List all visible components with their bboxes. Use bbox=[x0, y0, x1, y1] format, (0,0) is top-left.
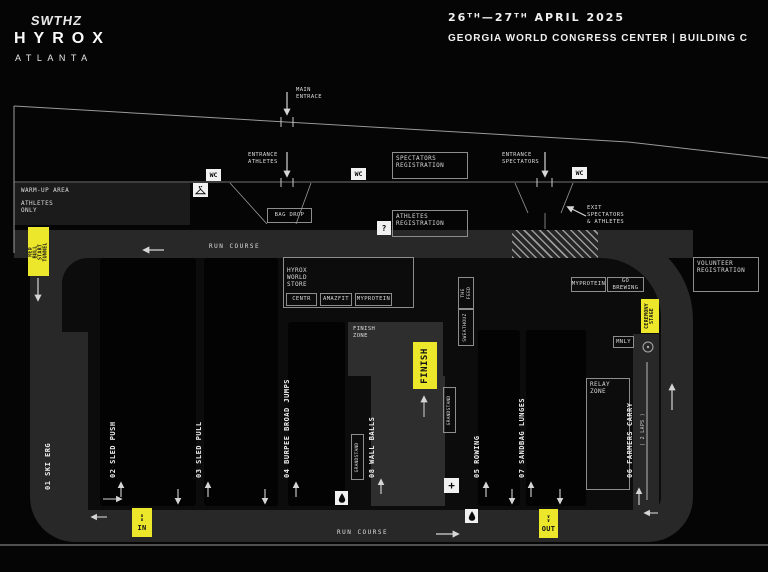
gate-out: ∨ ∨ OUT bbox=[539, 509, 558, 538]
skierg-lane bbox=[62, 332, 88, 510]
grandstand-left-label: GRANDSTAND bbox=[355, 442, 360, 472]
exit-arrow bbox=[568, 207, 586, 216]
station-farmers-note: ( 2 LAPS ) bbox=[640, 413, 646, 446]
bag-drop-box: BAG DROP bbox=[267, 208, 312, 223]
entrance-spectators-label: ENTRANCE SPECTATORS bbox=[502, 152, 539, 166]
wc-box-3: WC bbox=[572, 167, 587, 179]
info-box: ? bbox=[377, 221, 391, 235]
station-skierg-label: 01 SKI ERG bbox=[44, 443, 52, 490]
station-wall-balls-label: 08 WALL BALLS bbox=[368, 417, 376, 478]
wc-box-2: WC bbox=[351, 168, 366, 180]
store-brand-amazfit: AMAZFIT bbox=[320, 293, 352, 306]
sponsor-myprotein-box: MYPROTEIN bbox=[571, 277, 606, 292]
station-sled-push-label: 02 SLED PUSH bbox=[109, 421, 117, 478]
station-farmers-label: 06 FARMERS CARRY bbox=[626, 403, 634, 478]
wall-balls-block bbox=[371, 376, 445, 506]
grandstand-right-box: GRANDSTAND bbox=[443, 387, 456, 433]
chevron-down-icon: ∨ ∨ bbox=[547, 515, 550, 523]
station-sled-pull-label: 03 SLED PULL bbox=[195, 421, 203, 478]
water-station-box-1 bbox=[335, 491, 348, 505]
start-tunnel-label: RED BULL START TUNNEL bbox=[29, 241, 49, 262]
athletes-only-label: ATHLETES ONLY bbox=[21, 200, 53, 214]
timing-clock-icon bbox=[641, 340, 655, 354]
station-rowing-label: 05 ROWING bbox=[473, 436, 481, 478]
station-burpee-label: 04 BURPEE BROAD JUMPS bbox=[283, 379, 291, 478]
store-title: HYROX WORLD STORE bbox=[287, 267, 307, 288]
spectators-registration-box: SPECTATORS REGISTRATION bbox=[392, 152, 468, 179]
event-city: ATLANTA bbox=[15, 53, 93, 63]
medical-box: + bbox=[444, 478, 459, 493]
chevron-up-icon: ∧ ∧ bbox=[140, 514, 143, 522]
sweathouz-label: SWEATHOUZ bbox=[463, 313, 469, 341]
sandbag-block bbox=[526, 330, 586, 506]
relay-zone-box: RELAY ZONE bbox=[586, 378, 630, 490]
red-bull-start-tunnel: RED BULL START TUNNEL bbox=[28, 227, 49, 276]
grandstand-right-label: GRANDSTAND bbox=[447, 395, 452, 425]
event-venue: GEORGIA WORLD CONGRESS CENTER | BUILDING… bbox=[448, 33, 748, 44]
wc-box-1: WC bbox=[206, 169, 221, 181]
entrance-athletes-label: ENTRANCE ATHLETES bbox=[248, 152, 278, 166]
main-entrance-label: MAIN ENTRACE bbox=[296, 87, 322, 101]
spectator-crossing-hatch bbox=[512, 230, 598, 258]
athletes-registration-box: ATHLETES REGISTRATION bbox=[392, 210, 468, 237]
exit-spectators-label: EXIT SPECTATORS & ATHLETES bbox=[587, 205, 624, 226]
hanger-icon bbox=[195, 186, 206, 195]
ceremony-stage: CEREMONY STAGE bbox=[641, 299, 659, 333]
rowing-block bbox=[478, 330, 520, 506]
warmup-area-label: WARM-UP AREA bbox=[21, 187, 69, 194]
the-feed-label: THE FEED bbox=[460, 287, 472, 300]
volunteer-registration-box: VOLUNTEER REGISTRATION bbox=[693, 257, 759, 292]
grandstand-left-box: GRANDSTAND bbox=[351, 434, 364, 480]
event-title: HYROX bbox=[14, 30, 111, 48]
burpee-block bbox=[288, 322, 345, 506]
water-droplet-icon bbox=[338, 493, 346, 503]
gate-in: ∧ ∧ IN bbox=[132, 508, 152, 537]
the-feed-box: THE FEED bbox=[458, 277, 474, 309]
station-sandbag-label: 07 SANDBAG LUNGES bbox=[518, 398, 526, 478]
run-course-bottom-label: RUN COURSE bbox=[337, 529, 388, 536]
water-station-box-2 bbox=[465, 509, 478, 523]
finish-label: FINISH bbox=[420, 348, 430, 384]
run-course-top-label: RUN COURSE bbox=[209, 243, 260, 250]
finish-zone-label: FINISH ZONE bbox=[353, 326, 375, 340]
gate-in-label: IN bbox=[137, 524, 146, 532]
sled-pull-block bbox=[204, 258, 278, 506]
sponsor-mnly-box: MNLY bbox=[613, 336, 634, 348]
building-boundary-line bbox=[14, 106, 768, 158]
water-droplet-icon bbox=[468, 511, 476, 521]
farmers-carry-lane bbox=[633, 334, 659, 510]
store-brand-myprotein: MYPROTEIN bbox=[355, 293, 392, 306]
brand-logo: SWTHZ bbox=[30, 13, 83, 28]
ceremony-stage-label: CEREMONY STAGE bbox=[645, 303, 655, 329]
sponsor-go-brewing-box: GO BREWING bbox=[607, 277, 644, 292]
finish-marker: FINISH bbox=[413, 342, 437, 389]
spectators-funnel-lines bbox=[515, 183, 573, 229]
event-dates: 26ᵀᴴ—27ᵀᴴ APRIL 2025 bbox=[448, 11, 625, 24]
cloakroom-box bbox=[193, 183, 208, 197]
store-brand-centr: CENTR bbox=[286, 293, 317, 306]
gate-out-label: OUT bbox=[542, 525, 556, 533]
sweathouz-box: SWEATHOUZ bbox=[458, 309, 474, 346]
